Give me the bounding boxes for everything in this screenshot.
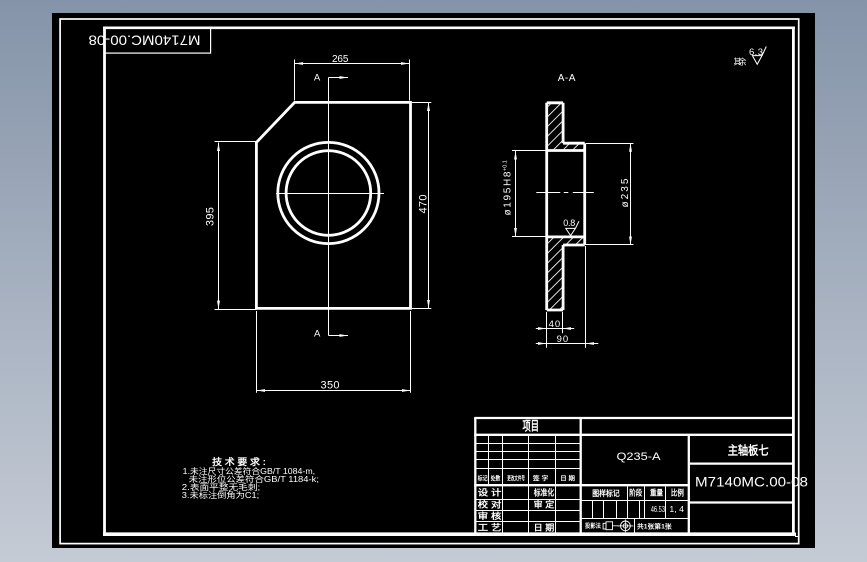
svg-text:主轴板七: 主轴板七 [728, 442, 769, 457]
svg-text:技 术 要 求 :: 技 术 要 求 : [212, 456, 266, 467]
svg-text:46.53: 46.53 [651, 504, 666, 514]
svg-text:标记: 标记 [477, 474, 488, 482]
svg-text:Q235-A: Q235-A [617, 451, 662, 463]
svg-text:标准化: 标准化 [533, 487, 555, 497]
svg-text:90: 90 [557, 334, 569, 345]
svg-text:审 核: 审 核 [478, 511, 502, 521]
svg-text:+0.1: +0.1 [502, 160, 508, 171]
svg-text:审 定: 审 定 [534, 500, 555, 510]
svg-text:校 对: 校 对 [478, 500, 502, 510]
svg-text:265: 265 [332, 54, 349, 65]
svg-text:共1张第1张: 共1张第1张 [637, 521, 672, 530]
svg-text:其余: 其余 [734, 57, 747, 67]
svg-text:3.未标注倒角为C1;: 3.未标注倒角为C1; [182, 490, 259, 500]
svg-text:6.3: 6.3 [749, 47, 763, 58]
svg-text:项目: 项目 [523, 419, 540, 434]
svg-text:图样标记: 图样标记 [592, 488, 619, 498]
svg-text:处数: 处数 [490, 474, 501, 482]
svg-text:签 字: 签 字 [532, 474, 549, 482]
svg-text:阶段: 阶段 [629, 488, 642, 498]
svg-text:比例: 比例 [671, 488, 684, 498]
svg-text:M7140MC.00-08: M7140MC.00-08 [695, 475, 808, 490]
svg-text:日 期: 日 期 [534, 522, 555, 532]
svg-text:A: A [314, 329, 321, 340]
svg-text:40: 40 [549, 319, 561, 330]
svg-text:日 期: 日 期 [560, 474, 575, 482]
svg-text:A: A [314, 73, 321, 84]
svg-text:更改文件号: 更改文件号 [507, 474, 525, 482]
svg-text:A-A: A-A [558, 73, 576, 84]
svg-text:M7140MC.00-08: M7140MC.00-08 [88, 33, 200, 49]
svg-text:工 艺: 工 艺 [478, 522, 502, 532]
svg-text:投影法: 投影法 [585, 522, 601, 530]
svg-text:1, 4: 1, 4 [669, 504, 684, 514]
svg-text:0.8: 0.8 [563, 218, 575, 228]
svg-text:395: 395 [205, 207, 217, 226]
svg-text:470: 470 [417, 195, 429, 214]
svg-text:设 计: 设 计 [478, 488, 502, 498]
svg-text:重量: 重量 [650, 488, 663, 498]
svg-text:350: 350 [321, 380, 340, 392]
